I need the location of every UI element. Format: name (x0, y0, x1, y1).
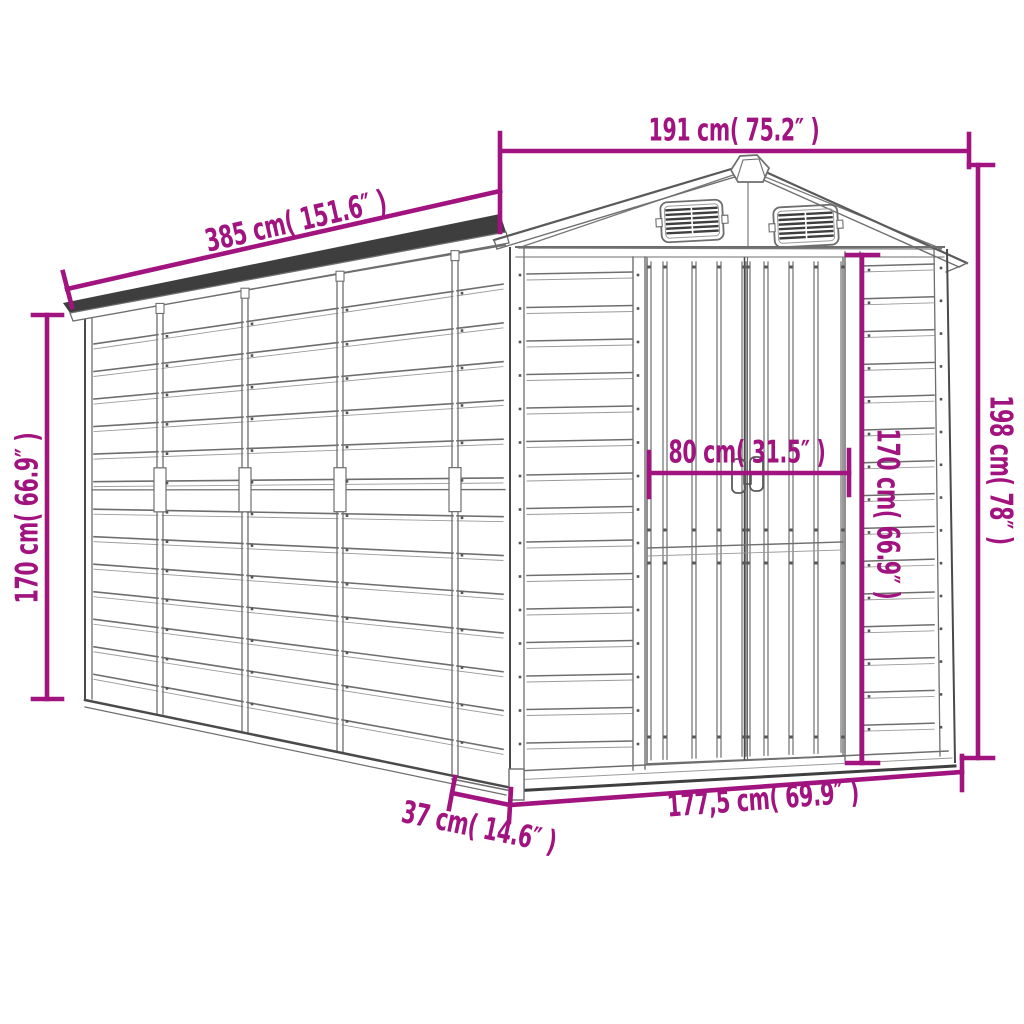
dim-label-door-width: 80 cm( 31.5″ ) (669, 438, 826, 469)
dim-label-roof-width: 191 cm( 75.2″ ) (649, 116, 820, 147)
dim-label-door-height: 170 cm( 66.9″ ) (872, 429, 903, 600)
product-dimension-image: 191 cm( 75.2″ ) 385 cm( 151.6″ ) 170 cm(… (0, 0, 1024, 1024)
dim-label-wall-height: 170 cm( 66.9″ ) (13, 433, 44, 604)
dim-label-total-height: 198 cm( 78″ ) (985, 395, 1016, 545)
